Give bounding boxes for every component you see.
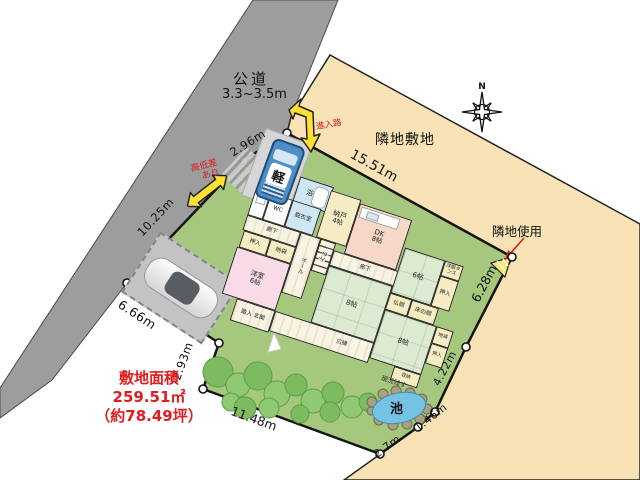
neighbor-use-label: 隣地使用 [492, 221, 542, 240]
compass-icon: N [462, 82, 502, 132]
boundary-node [462, 343, 470, 351]
site-plan-screenshot: { "road": { "name": "公道", "width": "3.3~… [0, 0, 640, 480]
road-width-label: 3.3~3.5m [222, 87, 287, 102]
neighbor-land-label: 隣地敷地 [375, 129, 435, 149]
site-area-block: 敷地面積 259.51㎡ （約78.49坪） [82, 369, 216, 425]
kitchen-counter [358, 207, 400, 230]
car-windows [162, 269, 202, 307]
road-name-label: 公道 [233, 68, 269, 89]
pond-label: 池 [390, 398, 403, 417]
kitchen-sink [366, 211, 380, 222]
site-area-m2: 259.51㎡ [82, 388, 216, 407]
site-area-tsubo: （約78.49坪） [82, 407, 216, 426]
boundary-node [215, 339, 223, 347]
site-area-title: 敷地面積 [82, 369, 216, 388]
compass-north-label: N [478, 82, 486, 92]
boundary-node [508, 253, 516, 261]
